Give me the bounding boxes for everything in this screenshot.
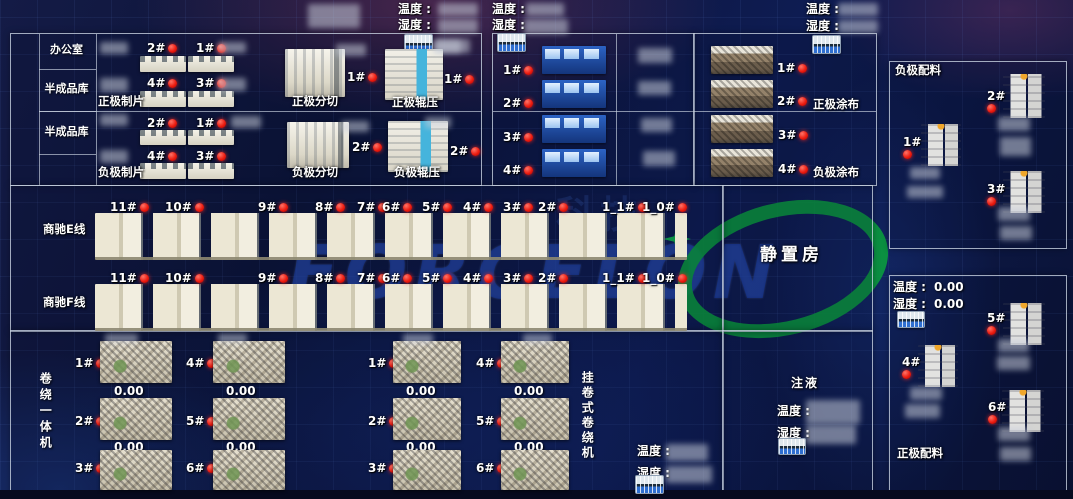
machine-label: 4# <box>476 357 494 369</box>
status-dot <box>403 274 412 283</box>
station-f-9[interactable]: 9# <box>258 272 288 284</box>
status-dot <box>524 133 533 142</box>
status-dot <box>484 203 493 212</box>
redacted-text <box>638 48 672 63</box>
status-dot <box>987 197 996 206</box>
feed-system-machine[interactable] <box>542 149 606 177</box>
sheet-machine[interactable] <box>188 56 234 72</box>
station-label: 3# <box>503 272 521 284</box>
redacted-text <box>838 20 878 33</box>
station-label: 7# <box>357 272 375 284</box>
status-dot <box>279 274 288 283</box>
winder-machine[interactable] <box>100 341 172 383</box>
sheet-machine[interactable] <box>188 91 234 107</box>
section-pos-coating: 正极涂布 <box>813 99 859 111</box>
winder-machine[interactable] <box>100 398 172 440</box>
injection-title: 注液 <box>791 377 819 389</box>
winder-machine[interactable] <box>501 341 569 383</box>
feed-system-machine[interactable] <box>542 115 606 143</box>
redacted-text <box>666 444 708 461</box>
machine-label: 5# <box>476 415 494 427</box>
station-label: 11# <box>110 272 137 284</box>
redacted-text <box>1000 226 1032 240</box>
machine-label: 4# <box>147 77 165 89</box>
section-neg-slit: 负极分切 <box>292 167 338 179</box>
coater-unit-1[interactable]: 1# <box>777 62 807 74</box>
station-label: 1_0# <box>642 272 675 284</box>
status-dot <box>168 79 177 88</box>
status-dot <box>168 119 177 128</box>
station-label: 2# <box>538 272 556 284</box>
panel-divider <box>39 154 96 155</box>
machine-label: 2# <box>450 145 468 157</box>
temp-value: 0.00 <box>934 281 964 293</box>
machine-label: 1# <box>903 136 921 148</box>
hum-label: 湿度 : <box>398 19 431 31</box>
redacted-text <box>998 427 1030 441</box>
status-dot <box>559 274 568 283</box>
neg-batch-unit-1[interactable]: 1# <box>903 136 921 159</box>
status-dot <box>902 370 911 379</box>
section-pos-slit: 正极分切 <box>292 96 338 108</box>
pos-press-unit-1[interactable]: 1# <box>444 73 474 85</box>
winder-unit-6[interactable]: 6# <box>186 462 216 474</box>
status-dot <box>524 66 533 75</box>
station-label: 10# <box>165 272 192 284</box>
section-neg-press: 负极辊压 <box>394 167 440 179</box>
station-f-6[interactable]: 6# <box>382 272 412 284</box>
machine-label: 2# <box>777 95 795 107</box>
status-dot <box>471 147 480 156</box>
station-e-1-1[interactable]: 1_1# <box>602 201 647 213</box>
station-label: 10# <box>165 201 192 213</box>
bottom-bar <box>0 490 1073 499</box>
station-f-10[interactable]: 10# <box>165 272 204 284</box>
status-dot <box>368 73 377 82</box>
station-label: 8# <box>315 272 333 284</box>
station-label: 3# <box>503 201 521 213</box>
redacted-text <box>910 167 940 179</box>
status-dot <box>524 166 533 175</box>
temp-label: 温度 : <box>893 281 926 293</box>
line-e-machines[interactable] <box>95 213 687 260</box>
thermo-hygrometer-gauge <box>497 33 526 52</box>
station-f-1-0[interactable]: 1_0# <box>642 272 687 284</box>
hum-label: 湿度 : <box>893 298 926 310</box>
temp-label: 温度 : <box>398 3 431 15</box>
machine-label: 1# <box>444 73 462 85</box>
line-e-label: 商驰E线 <box>43 224 85 236</box>
status-dot <box>140 203 149 212</box>
panel-divider <box>616 34 617 185</box>
feeder-unit-4[interactable]: 4# <box>503 164 533 176</box>
neg-slit-unit-2[interactable]: 2# <box>352 141 382 153</box>
machine-label: 1# <box>368 357 386 369</box>
coater-machine[interactable] <box>711 46 773 74</box>
redacted-text <box>998 207 1030 221</box>
panel-divider <box>39 111 481 112</box>
panel-divider <box>493 111 694 112</box>
machine-label: 2# <box>503 97 521 109</box>
machine-label: 1# <box>503 64 521 76</box>
station-label: 5# <box>422 272 440 284</box>
redacted-text <box>638 81 671 95</box>
redacted-text <box>425 117 451 128</box>
station-label: 7# <box>357 201 375 213</box>
redacted-text <box>910 387 942 400</box>
winder-machine[interactable] <box>501 450 569 490</box>
machine-label: 1# <box>347 71 365 83</box>
redacted-text <box>403 334 433 344</box>
machine-label: 4# <box>186 357 204 369</box>
status-dot <box>279 203 288 212</box>
machine-label: 3# <box>368 462 386 474</box>
machine-label: 5# <box>186 415 204 427</box>
station-label: 6# <box>382 272 400 284</box>
line-f-machines[interactable] <box>95 284 687 331</box>
station-f-5[interactable]: 5# <box>422 272 452 284</box>
status-dot <box>798 64 807 73</box>
machine-label: 2# <box>368 415 386 427</box>
line-f-label: 商驰F线 <box>43 297 85 309</box>
status-dot <box>195 203 204 212</box>
env1-hum-row: 湿度 : <box>398 19 431 31</box>
machine-label: 2# <box>75 415 93 427</box>
station-label: 5# <box>422 201 440 213</box>
rest-room-label: 静置房 <box>760 247 823 264</box>
winder-machine[interactable] <box>213 398 285 440</box>
env3-temp-row: 温度 : <box>806 3 839 15</box>
pos-slit-unit-1[interactable]: 1# <box>347 71 377 83</box>
station-f-8[interactable]: 8# <box>315 272 345 284</box>
redacted-text <box>308 4 360 28</box>
status-dot <box>987 104 996 113</box>
machine-label: 2# <box>352 141 370 153</box>
hum-value: 0.00 <box>934 298 964 310</box>
pos-sheet-unit-4[interactable]: 4# <box>147 77 177 89</box>
redacted-text <box>666 466 712 483</box>
status-dot <box>799 131 808 140</box>
redacted-text <box>643 151 675 166</box>
redacted-text <box>905 404 940 418</box>
redacted-text <box>641 118 672 132</box>
redacted-text <box>524 19 568 34</box>
panel-divider <box>39 34 40 185</box>
machine-label: 2# <box>147 117 165 129</box>
machine-label: 1# <box>777 62 795 74</box>
factory-hmi-dashboard: 科技 FORCELON 温度 : 湿度 : 温度 : 湿度 : 温度 : 湿度 … <box>0 0 1073 499</box>
status-dot <box>195 274 204 283</box>
env1-temp-row: 温度 : <box>398 3 431 15</box>
neg-sheet-unit-4[interactable]: 4# <box>147 150 177 162</box>
pos-batching-title: 正极配料 <box>897 448 943 460</box>
station-f-1-1[interactable]: 1_1# <box>602 272 647 284</box>
status-dot <box>168 44 177 53</box>
machine-label: 1# <box>75 357 93 369</box>
feed-system-machine[interactable] <box>542 46 606 74</box>
coater-machine[interactable] <box>711 80 773 108</box>
machine-label: 3# <box>778 129 796 141</box>
station-e-10[interactable]: 10# <box>165 201 204 213</box>
machine-label: 1# <box>196 42 214 54</box>
status-dot <box>987 326 996 335</box>
station-label: 4# <box>463 201 481 213</box>
redacted-text <box>998 117 1030 131</box>
winder-unit-4[interactable]: 4# <box>186 357 216 369</box>
status-dot <box>403 203 412 212</box>
sheet-machine[interactable] <box>140 163 186 179</box>
station-e-5[interactable]: 5# <box>422 201 452 213</box>
redacted-text <box>218 78 246 91</box>
station-label: 9# <box>258 272 276 284</box>
station-e-9[interactable]: 9# <box>258 201 288 213</box>
redacted-text <box>218 334 247 343</box>
winder-machine[interactable] <box>213 341 285 383</box>
station-e-3[interactable]: 3# <box>503 201 533 213</box>
sheet-machine[interactable] <box>140 130 186 145</box>
station-label: 1_1# <box>602 272 635 284</box>
pos-batch-hum-row: 湿度 :0.00 <box>893 298 964 310</box>
coater-unit-4[interactable]: 4# <box>778 163 808 175</box>
pos-sheet-unit-2[interactable]: 2# <box>147 42 177 54</box>
station-label: 6# <box>382 201 400 213</box>
status-dot <box>988 415 997 424</box>
thermo-hygrometer-gauge <box>635 475 664 494</box>
room-semi-warehouse-2: 半成品库 <box>38 126 95 137</box>
section-pos-press: 正极辊压 <box>392 97 438 109</box>
feed-system-machine[interactable] <box>542 80 606 108</box>
neg-press-unit-2[interactable]: 2# <box>450 145 480 157</box>
winder-machine[interactable] <box>213 450 285 490</box>
machine-label: 3# <box>503 131 521 143</box>
env2-temp-row: 温度 : <box>492 3 525 15</box>
sheet-machine[interactable] <box>188 130 234 145</box>
neg-batching-title: 负极配料 <box>895 65 941 77</box>
hum-label: 湿度 : <box>492 19 525 31</box>
panel-divider <box>39 69 96 70</box>
status-dot <box>465 75 474 84</box>
room-office: 办公室 <box>38 44 95 55</box>
section-neg-sheet: 负极制片 <box>98 167 144 179</box>
slitting-machine[interactable] <box>287 122 349 168</box>
station-f-4[interactable]: 4# <box>463 272 493 284</box>
temp-label: 温度 : <box>806 3 839 15</box>
machine-label: 3# <box>75 462 93 474</box>
winder-unit-5[interactable]: 5# <box>186 415 216 427</box>
hanging-winder-label: 挂卷式卷绕机 <box>580 371 593 461</box>
redacted-text <box>907 186 943 198</box>
feeder-unit-3[interactable]: 3# <box>503 131 533 143</box>
neg-sheet-unit-3[interactable]: 3# <box>196 150 226 162</box>
redacted-text <box>100 78 128 92</box>
winder-machine[interactable] <box>393 450 461 490</box>
status-dot <box>217 152 226 161</box>
status-dot <box>443 274 452 283</box>
pos-batch-temp-row: 温度 :0.00 <box>893 281 964 293</box>
station-label: 11# <box>110 201 137 213</box>
status-dot <box>903 150 912 159</box>
station-f-3[interactable]: 3# <box>503 272 533 284</box>
station-f-2[interactable]: 2# <box>538 272 568 284</box>
status-dot <box>798 97 807 106</box>
status-dot <box>443 203 452 212</box>
winder-machine[interactable] <box>100 450 172 490</box>
neg-sheet-unit-1[interactable]: 1# <box>196 117 226 129</box>
mixer-machine[interactable] <box>1003 74 1045 118</box>
machine-label: 1# <box>196 117 214 129</box>
station-label: 8# <box>315 201 333 213</box>
station-e-1-0[interactable]: 1_0# <box>642 201 687 213</box>
station-e-8[interactable]: 8# <box>315 201 345 213</box>
sheet-machine[interactable] <box>140 56 186 72</box>
winder-value: 0.00 <box>514 385 544 397</box>
redacted-text <box>100 42 128 54</box>
winder-machine[interactable] <box>501 398 569 440</box>
station-e-11[interactable]: 11# <box>110 201 149 213</box>
status-dot <box>524 203 533 212</box>
status-dot <box>484 274 493 283</box>
winding-label: 卷绕一体机 <box>38 372 51 452</box>
redacted-text <box>336 44 366 56</box>
winder-value: 0.00 <box>406 385 436 397</box>
station-label: 4# <box>463 272 481 284</box>
coater-machine[interactable] <box>711 115 773 143</box>
section-neg-coating: 负极涂布 <box>813 167 859 179</box>
redacted-text <box>218 42 246 53</box>
status-dot <box>217 119 226 128</box>
status-dot <box>140 274 149 283</box>
status-dot <box>336 203 345 212</box>
status-dot <box>524 274 533 283</box>
machine-label: 4# <box>778 163 796 175</box>
winder-value: 0.00 <box>226 385 256 397</box>
status-dot <box>168 152 177 161</box>
redacted-text <box>438 3 478 16</box>
redacted-text <box>231 116 261 128</box>
env3-hum-row: 湿度 : <box>806 20 839 32</box>
redacted-text <box>100 150 128 163</box>
thermo-hygrometer-gauge <box>812 35 841 54</box>
station-e-2[interactable]: 2# <box>538 201 568 213</box>
neg-sheet-unit-2[interactable]: 2# <box>147 117 177 129</box>
redacted-text <box>526 3 564 16</box>
station-e-6[interactable]: 6# <box>382 201 412 213</box>
machine-label: 2# <box>147 42 165 54</box>
status-dot <box>559 203 568 212</box>
mixer-machine[interactable] <box>1002 390 1044 432</box>
redacted-text <box>341 121 369 132</box>
redacted-text <box>438 19 478 33</box>
thermo-hygrometer-gauge <box>778 438 806 455</box>
redacted-text <box>838 3 878 16</box>
feeder-unit-2[interactable]: 2# <box>503 97 533 109</box>
hum-label: 湿度 : <box>806 20 839 32</box>
slitting-machine[interactable] <box>285 49 345 97</box>
redacted-text <box>806 425 856 444</box>
panel-divider <box>96 34 97 185</box>
winder-value: 0.00 <box>114 385 144 397</box>
status-dot <box>678 274 687 283</box>
mixer-machine[interactable] <box>918 345 958 387</box>
status-dot <box>336 274 345 283</box>
section-pos-sheet: 正极制片 <box>98 96 144 108</box>
coater-unit-3[interactable]: 3# <box>778 129 808 141</box>
machine-label: 6# <box>476 462 494 474</box>
redacted-text <box>1000 447 1031 461</box>
status-dot <box>373 143 382 152</box>
room-semi-warehouse-1: 半成品库 <box>38 83 95 94</box>
roll-press-machine[interactable] <box>385 49 443 100</box>
machine-label: 4# <box>147 150 165 162</box>
station-label: 1_1# <box>602 201 635 213</box>
redacted-text <box>1000 137 1031 156</box>
redacted-text <box>997 356 1030 370</box>
sheet-machine[interactable] <box>140 91 186 107</box>
winder-machine[interactable] <box>393 341 461 383</box>
station-label: 1_0# <box>642 201 675 213</box>
station-e-4[interactable]: 4# <box>463 201 493 213</box>
machine-label: 3# <box>196 150 214 162</box>
coater-machine[interactable] <box>711 149 773 177</box>
station-f-11[interactable]: 11# <box>110 272 149 284</box>
machine-label: 6# <box>186 462 204 474</box>
winder-machine[interactable] <box>393 398 461 440</box>
redacted-text <box>998 339 1029 352</box>
sheet-machine[interactable] <box>188 163 234 179</box>
redacted-text <box>100 114 128 126</box>
station-label: 2# <box>538 201 556 213</box>
machine-label: 3# <box>196 77 214 89</box>
feeder-unit-1[interactable]: 1# <box>503 64 533 76</box>
temp-label: 温度 : <box>492 3 525 15</box>
machine-label: 4# <box>503 164 521 176</box>
redacted-text <box>523 334 552 344</box>
coater-unit-2[interactable]: 2# <box>777 95 807 107</box>
station-label: 9# <box>258 201 276 213</box>
redacted-text <box>433 40 461 53</box>
redacted-text <box>806 400 860 424</box>
thermo-hygrometer-gauge <box>897 311 925 328</box>
status-dot <box>799 165 808 174</box>
status-dot <box>524 99 533 108</box>
panel-divider <box>694 111 876 112</box>
mixer-machine[interactable] <box>921 124 961 166</box>
env2-hum-row: 湿度 : <box>492 19 525 31</box>
status-dot <box>678 203 687 212</box>
redacted-text <box>105 334 138 343</box>
